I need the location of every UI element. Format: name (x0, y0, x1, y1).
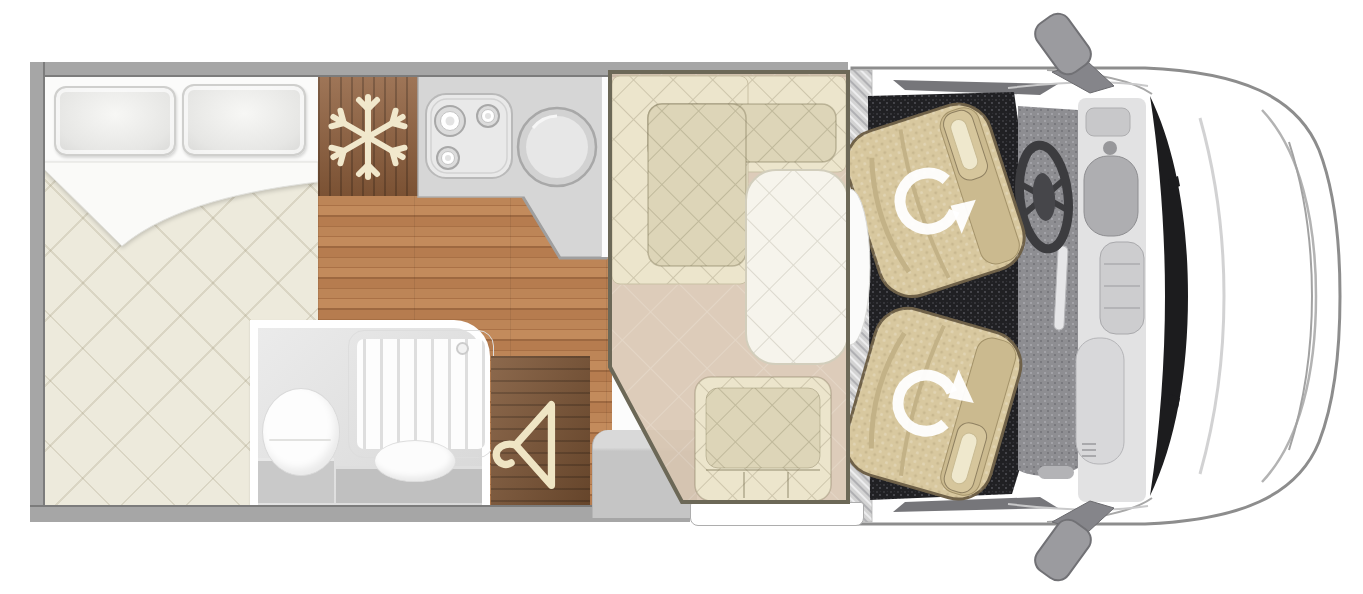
wiper-arm-lower (1168, 394, 1180, 408)
pillow (54, 86, 176, 156)
swivel-seat-passenger (837, 300, 1029, 507)
shower-drain (456, 342, 469, 355)
wall-left (30, 62, 45, 520)
body-crease-upper (1008, 82, 1148, 88)
door-window-bottom (893, 497, 1058, 512)
toilet-seat-line (269, 439, 331, 441)
entry-door-step (690, 502, 864, 526)
hanger-icon (491, 356, 590, 507)
dashboard (1038, 98, 1146, 502)
swivel-seat-driver (837, 95, 1033, 305)
van-body-outline (852, 68, 1340, 524)
snowflake-icon (318, 75, 418, 196)
dash-console (1076, 338, 1124, 464)
dash-knob (1103, 141, 1117, 155)
bathroom (250, 320, 490, 507)
shower-tray (348, 330, 494, 458)
hood-crease-top (1047, 70, 1152, 94)
cab-footwell-mat (1018, 106, 1078, 476)
cab-step-plate (846, 70, 872, 522)
door-handle (1038, 466, 1074, 479)
wardrobe (491, 356, 590, 507)
wiper-arm-upper (1168, 176, 1180, 190)
hood-crease-bottom (1047, 498, 1152, 522)
wall-bottom (30, 505, 690, 522)
dash-vent (1086, 108, 1130, 136)
dash-bulge (1084, 156, 1138, 236)
kitchen-dinette-partition (601, 75, 616, 257)
swivel-arrow-icon (891, 356, 981, 443)
armrest (941, 420, 989, 496)
washbasin (374, 440, 456, 482)
bumper-line (1289, 142, 1312, 450)
side-mirror-top (1030, 9, 1114, 93)
fridge (318, 75, 418, 196)
toilet (262, 388, 340, 476)
windshield-glass-edge (1200, 118, 1224, 474)
door-window-top (893, 80, 1058, 95)
swivel-arrow-icon (893, 160, 985, 249)
body-crease-lower (1008, 504, 1148, 510)
cab-carpet (868, 92, 1020, 500)
steering-wheel (1015, 143, 1074, 251)
pillow (182, 84, 306, 156)
wall-top (30, 62, 848, 77)
side-mirror-bottom (1030, 501, 1114, 585)
dash-column (1100, 242, 1144, 334)
floorplan-canvas (0, 0, 1363, 594)
handbrake-lever (1054, 246, 1068, 330)
windshield (1150, 96, 1188, 496)
armrest (940, 107, 990, 183)
entry-step (592, 430, 697, 518)
nose-line-outer (1262, 110, 1316, 482)
